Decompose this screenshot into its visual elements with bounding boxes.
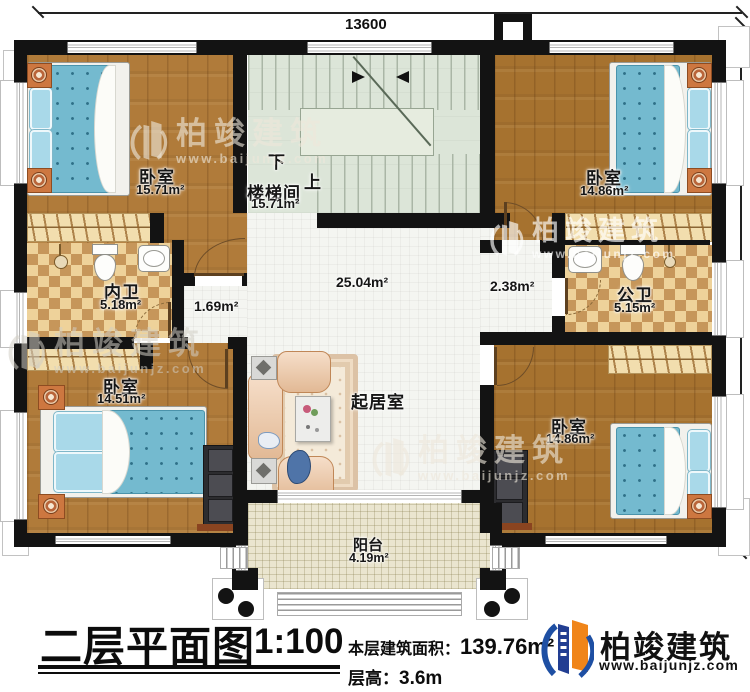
nightstand xyxy=(687,63,712,88)
hall-area-label: 25.04m² xyxy=(336,274,388,290)
nightstand xyxy=(687,494,712,519)
closet-bedroom-tl xyxy=(27,213,152,242)
wall-closet-tl-stub xyxy=(150,213,164,243)
wall-balcony-stub-left xyxy=(247,490,277,503)
window xyxy=(67,42,197,53)
wall-balcony-stub-right xyxy=(460,490,490,503)
nightstand xyxy=(38,385,65,410)
stair-lower-flight xyxy=(317,154,480,213)
armchair xyxy=(277,351,331,393)
nook-area-label: 1.69m² xyxy=(194,298,238,314)
wall-bath-public-left-a xyxy=(552,253,565,278)
nightstand xyxy=(27,63,52,88)
person-figure xyxy=(258,432,280,449)
room-area-bedroom-bl: 14.51m² xyxy=(97,391,145,406)
window xyxy=(712,262,726,336)
room-area-bath-public: 5.15m² xyxy=(614,300,655,315)
wall-bedroomtl-stair xyxy=(233,55,247,213)
side-steps xyxy=(220,547,248,569)
wall-bedroom-br-left-stub xyxy=(480,332,494,345)
door-leaf xyxy=(565,278,568,314)
bed-pillow xyxy=(30,88,52,130)
wall-bath-inner-bottom xyxy=(14,337,134,349)
shower-head xyxy=(54,255,68,269)
room-area-bedroom-tr: 14.86m² xyxy=(580,183,628,198)
wall-stair-right xyxy=(480,40,495,213)
wall-bath-inner-right xyxy=(172,240,184,338)
room-area-bedroom-tl: 15.71m² xyxy=(136,182,184,197)
brand-logo-icon xyxy=(538,616,594,680)
wall-passage-bottom xyxy=(175,273,195,286)
side-table xyxy=(251,356,277,380)
balcony-sliding-door xyxy=(277,490,462,503)
door-leaf xyxy=(225,349,228,388)
stair-landing xyxy=(300,108,434,156)
floor-area-label: 本层建筑面积： xyxy=(348,635,460,659)
balcony-corner-post xyxy=(480,568,506,590)
floor-area-row: 本层建筑面积： 139.76m² xyxy=(348,634,554,660)
sink xyxy=(138,245,170,272)
stair-up-label: 上 xyxy=(304,168,322,193)
entry-steps xyxy=(277,592,462,616)
chimney-flue xyxy=(503,22,523,40)
wall-bath-public-left-b xyxy=(552,316,565,332)
window-sill xyxy=(726,260,744,338)
bed-pillow xyxy=(688,430,710,472)
wall-stair-bottom xyxy=(317,213,510,228)
top-dimension-line xyxy=(38,12,742,14)
column xyxy=(484,601,500,617)
floor-height-row: 层高： 3.6m xyxy=(348,664,442,690)
coffee-table xyxy=(295,396,331,442)
room-area-stairwell: 15.71m² xyxy=(251,196,299,211)
window xyxy=(712,82,726,184)
bed-pillow xyxy=(54,412,106,452)
title-underline-thick xyxy=(38,665,340,669)
room-label-living: 起居室 xyxy=(351,388,405,413)
column xyxy=(218,588,234,604)
nightstand xyxy=(38,494,65,519)
wall-closet-tr-stub xyxy=(552,213,565,253)
window xyxy=(14,412,27,520)
door-leaf xyxy=(194,273,244,276)
sink xyxy=(568,246,602,273)
wall-bath-inner-bottom2 xyxy=(170,337,188,349)
plan-scale: 1:100 xyxy=(254,622,344,662)
floor-plan-canvas: 13600 10800 xyxy=(0,0,750,692)
wall-balcony-side-right xyxy=(490,503,502,545)
room-area-bedroom-br: 14.86m² xyxy=(546,431,594,446)
door-leaf xyxy=(168,302,171,338)
door-leaf xyxy=(494,347,497,385)
room-area-balcony: 4.19m² xyxy=(349,551,389,565)
column xyxy=(504,588,520,604)
floor-height-value: 3.6m xyxy=(399,668,442,690)
bed-pillow xyxy=(688,130,710,172)
nightstand xyxy=(27,168,52,193)
cabinet xyxy=(203,445,237,527)
bed-pillow xyxy=(30,130,52,172)
balcony-corner-post xyxy=(232,568,258,590)
window xyxy=(55,536,171,544)
side-steps xyxy=(492,547,520,569)
window xyxy=(549,42,674,53)
stair-direction-arrow xyxy=(352,71,365,83)
wall-bedroom-bl-top xyxy=(228,337,247,349)
corridor-area-label: 2.38m² xyxy=(490,278,534,294)
closet-bedroom-br xyxy=(608,345,712,374)
window-sill xyxy=(726,394,744,510)
wall-bath-public-bottom xyxy=(552,332,726,345)
bed-pillow xyxy=(54,452,106,492)
closet-bedroom-tr xyxy=(565,213,712,242)
window xyxy=(545,536,667,544)
window xyxy=(14,82,27,184)
wall-bedroom-tr-bottom xyxy=(480,240,502,253)
wall-closet-tr-line xyxy=(565,240,710,245)
window-sill xyxy=(726,80,744,186)
title-underline-thin xyxy=(38,672,340,674)
drain-cord xyxy=(668,245,670,256)
side-table xyxy=(251,458,277,484)
top-dimension-label: 13600 xyxy=(345,16,387,33)
shower-hose xyxy=(59,244,61,256)
brand-website: www.baijunjz.com xyxy=(599,657,739,673)
wall-balcony-side-left xyxy=(236,503,248,545)
window xyxy=(14,292,27,344)
wall-corridor-bottom xyxy=(494,332,552,345)
floor-height-label: 层高： xyxy=(348,664,399,689)
window xyxy=(307,42,432,53)
floor-drain xyxy=(664,256,676,268)
wall-closet-bl-stub xyxy=(140,343,153,369)
nightstand xyxy=(687,168,712,193)
door-leaf xyxy=(504,202,507,240)
bed-pillow xyxy=(688,88,710,130)
window xyxy=(712,396,726,508)
stair-down-label: 下 xyxy=(268,148,286,173)
room-area-bath-inner: 5.18m² xyxy=(100,297,141,312)
stair-direction-arrow xyxy=(396,71,409,83)
